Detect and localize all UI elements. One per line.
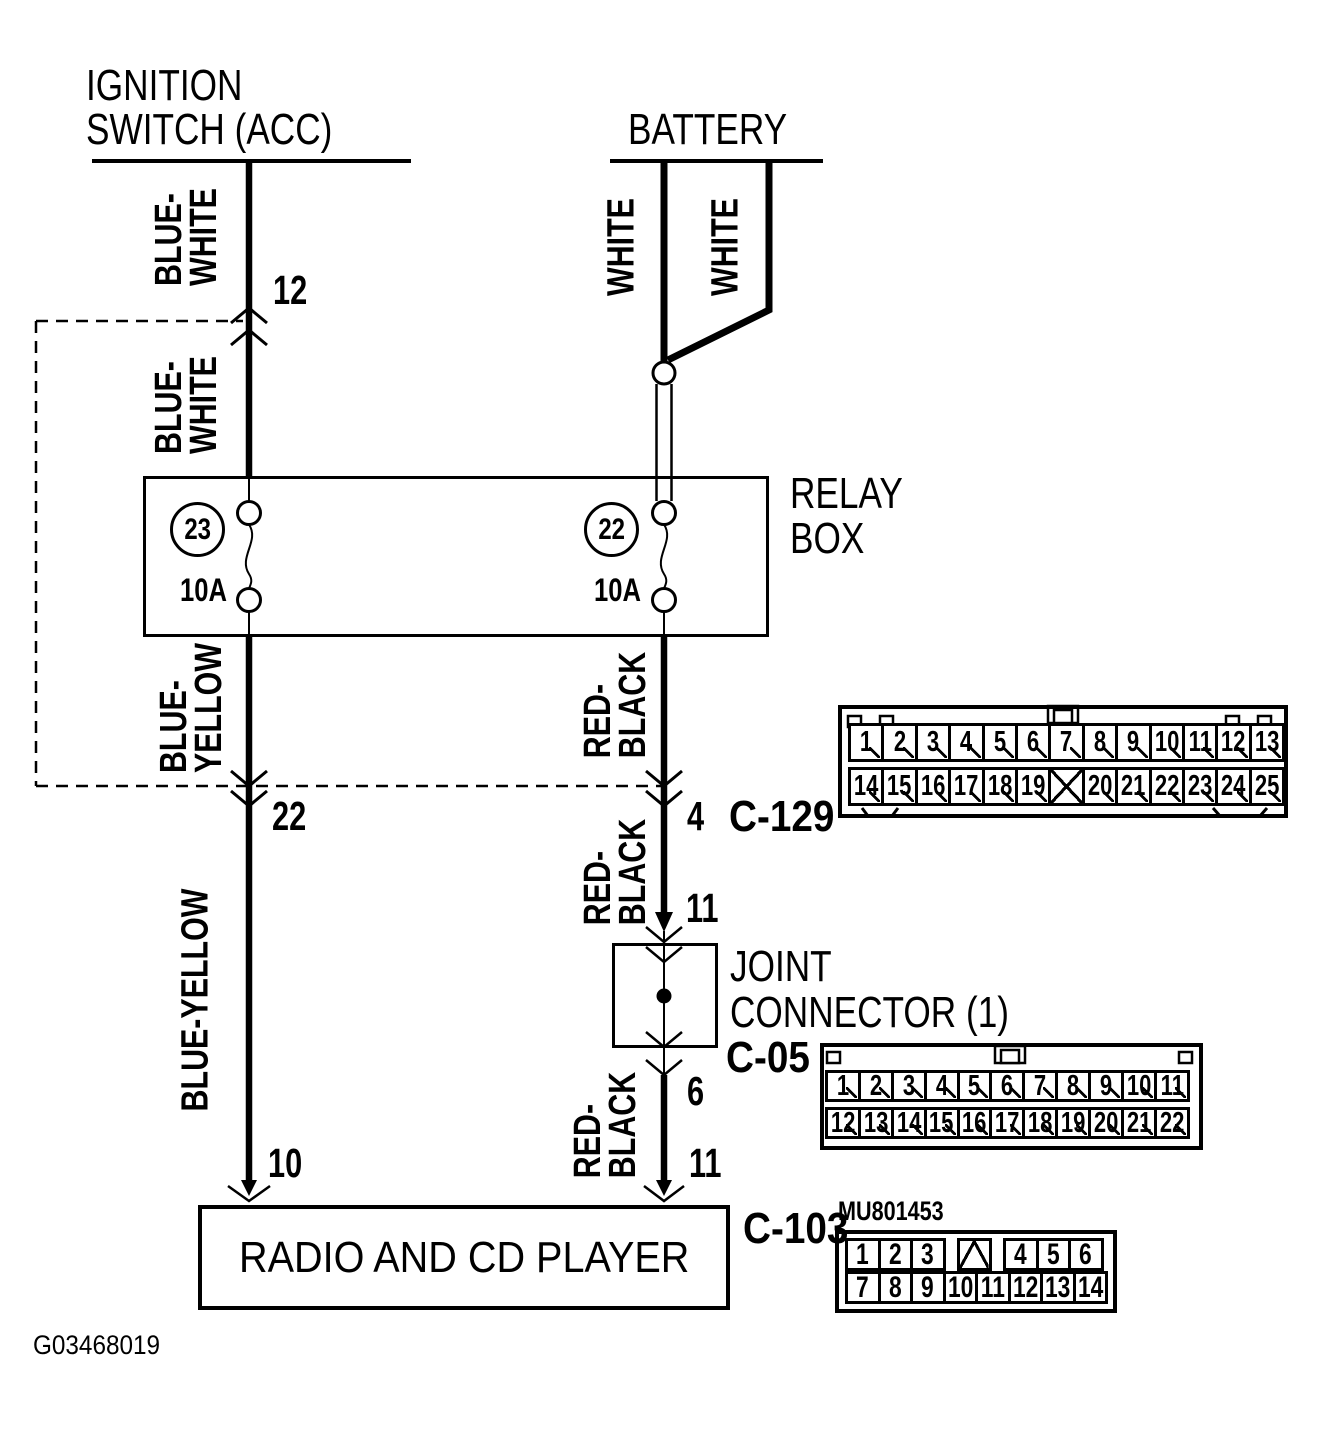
wire-label-blue-white-1: BLUE-WHITE: [152, 188, 222, 286]
pin-cell: 1: [845, 1238, 881, 1271]
splice-bullet: [653, 362, 675, 384]
pin-cell: 20: [1088, 1107, 1124, 1139]
wiring-diagram-canvas: RADIO AND CD PLAYER IGNITION SWITCH (ACC…: [0, 0, 1324, 1432]
relay-box-outline: [143, 476, 769, 637]
pin-cell: 25: [1249, 767, 1285, 806]
fuse-22-number-circle: 22: [584, 502, 639, 557]
pin-cell: 10: [943, 1271, 979, 1304]
pin-cell: 5: [957, 1070, 993, 1102]
c05-pin-row-1: 1 2 3 4 5 6 7 8 9 10 11: [825, 1070, 1190, 1102]
wire-label-blue-white-2: BLUE-WHITE: [152, 356, 222, 454]
wire-arrowhead-radio-right: [656, 1180, 672, 1196]
pin-cell: 12: [825, 1107, 861, 1139]
figure-id: G03468019: [33, 1331, 160, 1359]
pin-cell: 5: [1036, 1238, 1072, 1271]
pin-cell: 22: [1149, 767, 1185, 806]
pin-cell: 5: [982, 723, 1018, 762]
c129-pin-row-2: 14 15 16 17 18 19 X 20 21 22 23 24 25: [848, 767, 1285, 806]
pin-cell: 16: [915, 767, 951, 806]
pin-cell: 14: [848, 767, 884, 806]
radio-label: RADIO AND CD PLAYER: [239, 1233, 689, 1283]
pin-cell: 8: [1055, 1070, 1091, 1102]
connector-name-c103: C-103: [743, 1207, 848, 1251]
relay-box-title-line1: RELAY: [790, 471, 903, 517]
wire-label-blue-yellow-long: BLUE-YELLOW: [179, 889, 214, 1112]
wire-label-blue-yellow: BLUE-YELLOW: [157, 643, 227, 773]
pin-cell: 22: [1154, 1107, 1190, 1139]
pin-cell: 18: [982, 767, 1018, 806]
joint-connector-title-line1: JOINT: [730, 944, 832, 990]
pin-cell: 3: [891, 1070, 927, 1102]
pin-cell: 9: [1088, 1070, 1124, 1102]
pin-cell: 23: [1182, 767, 1218, 806]
pin-cell: 14: [891, 1107, 927, 1139]
pin-cell: 8: [878, 1271, 914, 1304]
pin-cell: 21: [1115, 767, 1151, 806]
pin-cell: 7: [845, 1271, 881, 1304]
pin-cell: 18: [1022, 1107, 1058, 1139]
pin-cell: 7: [1022, 1070, 1058, 1102]
blocked-pin-cell: X: [1048, 767, 1084, 806]
pin-cell: 17: [948, 767, 984, 806]
pin-cell: 6: [1068, 1238, 1104, 1271]
ignition-title-line1: IGNITION: [86, 63, 242, 109]
pin-cell: 4: [1003, 1238, 1039, 1271]
ignition-title-line2: SWITCH (ACC): [86, 107, 332, 153]
pin-number-4: 4: [687, 795, 704, 837]
pin-number-12: 12: [273, 269, 307, 311]
connector-c129-body: 1 2 3 4 5 6 7 8 9 10 11 12 13 14 15 16 1…: [838, 705, 1288, 818]
pin-cell: 3: [915, 723, 951, 762]
battery-title: BATTERY: [628, 107, 787, 153]
pin-cell: 6: [989, 1070, 1025, 1102]
pin-cell: 2: [881, 723, 917, 762]
pin-cell: 9: [910, 1271, 946, 1304]
pin-cell: 14: [1073, 1271, 1109, 1304]
keyway-pin-cell: V: [957, 1238, 993, 1271]
c05-pin-row-2: 12 13 14 15 16 17 18 19 20 21 22: [825, 1107, 1190, 1139]
pin-cell: 13: [1040, 1271, 1076, 1304]
pin-cell: 11: [975, 1271, 1011, 1304]
pin-cell: 3: [910, 1238, 946, 1271]
pin-cell: 10: [1121, 1070, 1157, 1102]
pin-cell: 11: [1154, 1070, 1190, 1102]
pin-cell: 11: [1182, 723, 1218, 762]
connector-name-c05: C-05: [726, 1036, 810, 1080]
c103-pin-row-1: 1 2 3 V 4 5 6: [845, 1238, 1104, 1271]
wire-label-red-black-2: RED-BLACK: [581, 819, 651, 925]
pin-cell: 8: [1082, 723, 1118, 762]
pin-cell: 16: [957, 1107, 993, 1139]
wire-arrowhead-radio-left: [241, 1180, 257, 1196]
pin-number-11-radio: 11: [689, 1142, 722, 1184]
wire-label-white-left: WHITE: [605, 198, 640, 296]
pin-number-11-joint: 11: [686, 887, 719, 929]
fuse-23-rating: 10A: [169, 574, 227, 606]
c129-pin-row-1: 1 2 3 4 5 6 7 8 9 10 11 12 13: [848, 723, 1285, 762]
fuse-23-number-circle: 23: [170, 502, 225, 557]
pin-cell: 1: [848, 723, 884, 762]
radio-cd-player-box: RADIO AND CD PLAYER: [198, 1205, 730, 1310]
pin-cell: 2: [878, 1238, 914, 1271]
wire-label-red-black-1: RED-BLACK: [581, 652, 651, 758]
connector-name-c129: C-129: [729, 795, 834, 839]
wire-arrowhead-joint-in: [655, 912, 673, 932]
pin-cell: 19: [1055, 1107, 1091, 1139]
pin-number-6: 6: [687, 1070, 704, 1112]
pin-cell: 19: [1015, 767, 1051, 806]
wire-label-white-right: WHITE: [709, 198, 744, 296]
joint-connector-outline: [612, 943, 718, 1048]
pin-cell: 4: [948, 723, 984, 762]
pin-cell: 15: [881, 767, 917, 806]
pin-cell: 20: [1082, 767, 1118, 806]
pin-cell: 2: [858, 1070, 894, 1102]
pin-cell: 17: [989, 1107, 1025, 1139]
c103-pin-row-2: 7 8 9 10 11 12 13 14: [845, 1271, 1108, 1304]
pin-cell: 10: [1149, 723, 1185, 762]
relay-box-title-line2: BOX: [790, 516, 864, 562]
pin-cell: 12: [1008, 1271, 1044, 1304]
connector-part-number: MU801453: [838, 1197, 944, 1225]
pin-cell: 12: [1215, 723, 1251, 762]
pin-cell: 1: [825, 1070, 861, 1102]
pin-cell: 9: [1115, 723, 1151, 762]
connector-c05-body: 1 2 3 4 5 6 7 8 9 10 11 12 13 14 15 16 1…: [820, 1043, 1203, 1150]
pin-cell: 13: [1249, 723, 1285, 762]
pin-cell: 7: [1048, 723, 1084, 762]
pin-cell: 13: [858, 1107, 894, 1139]
fuse-22-rating: 10A: [583, 574, 641, 606]
connector-c103-body: 1 2 3 V 4 5 6 7 8 9 10 11 12 13 14: [835, 1230, 1117, 1313]
pin-cell: 4: [924, 1070, 960, 1102]
pin-number-10: 10: [268, 1142, 302, 1184]
pin-cell: 21: [1121, 1107, 1157, 1139]
pin-cell: 24: [1215, 767, 1251, 806]
pin-cell: 6: [1015, 723, 1051, 762]
pin-cell: 15: [924, 1107, 960, 1139]
pin-number-22: 22: [272, 795, 306, 837]
joint-connector-title-line2: CONNECTOR (1): [730, 990, 1009, 1036]
wire-label-red-black-3: RED-BLACK: [571, 1072, 641, 1178]
